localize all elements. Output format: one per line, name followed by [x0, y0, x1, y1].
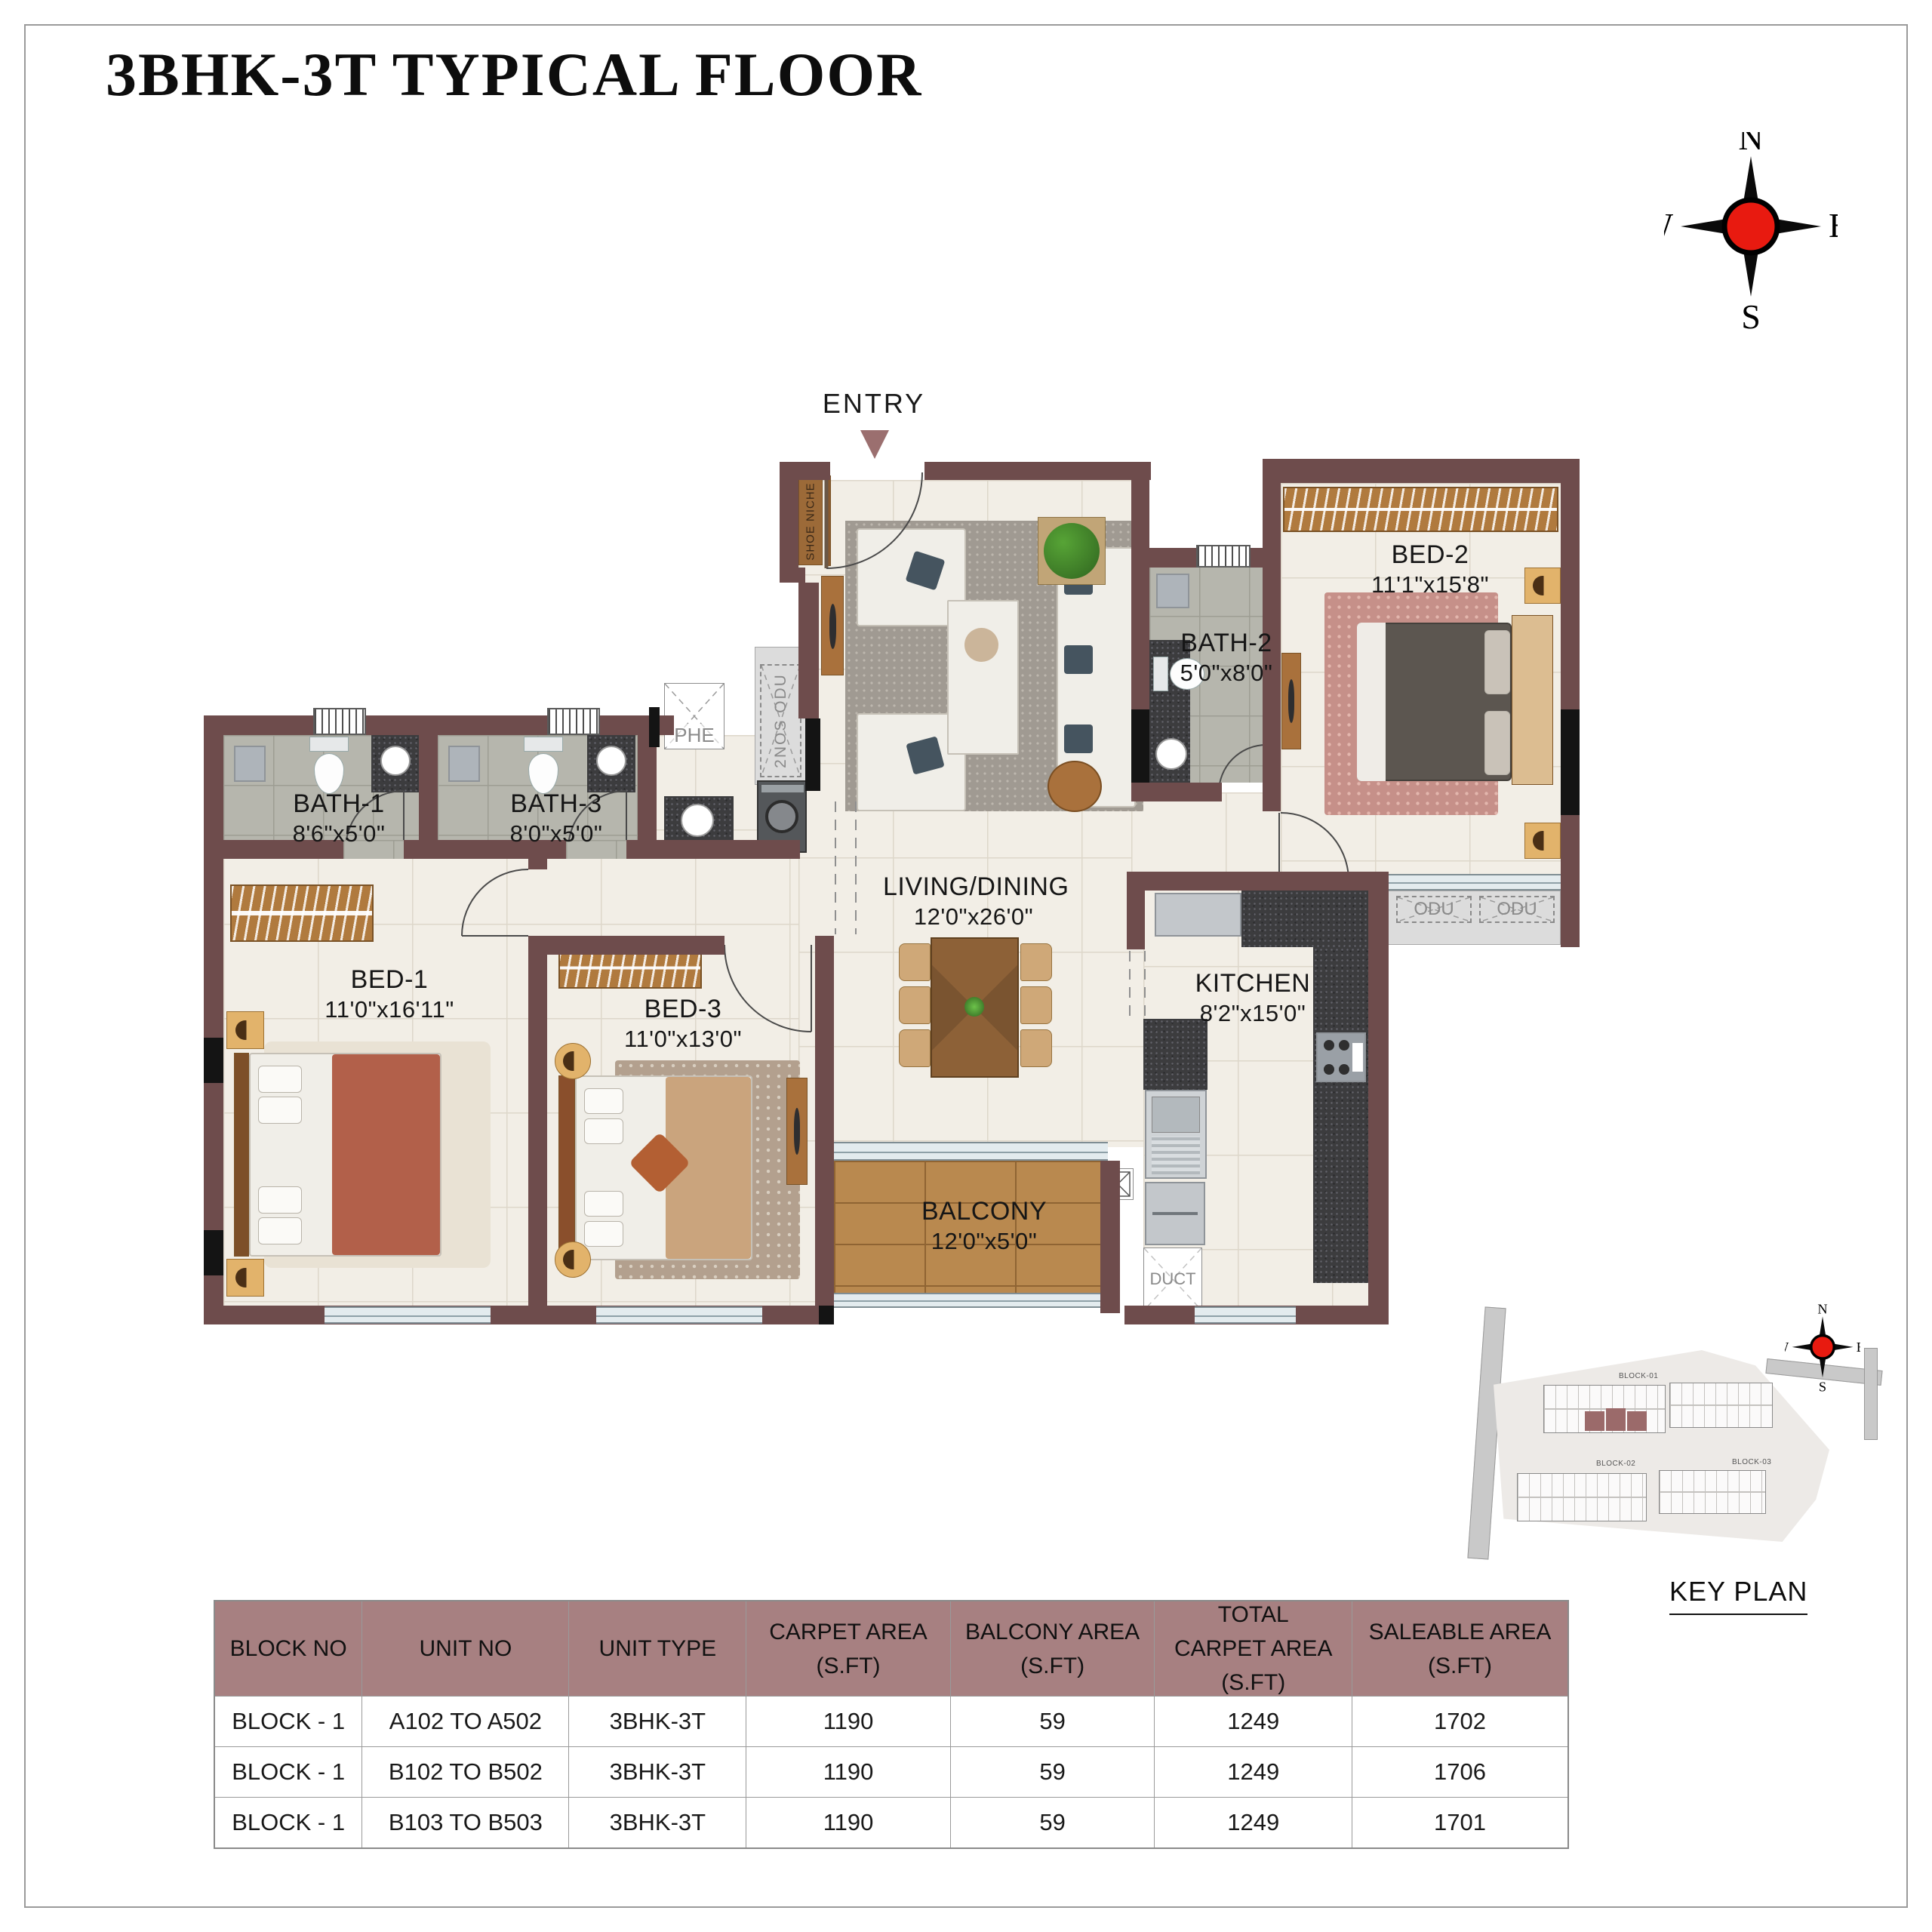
wall	[1368, 872, 1389, 1324]
cell: 3BHK-3T	[569, 1798, 746, 1847]
block-label: BLOCK-01	[1619, 1372, 1658, 1380]
wall	[1268, 783, 1281, 801]
cell: BLOCK - 1	[215, 1697, 362, 1747]
cell: 59	[951, 1747, 1155, 1798]
vent-window	[1196, 545, 1251, 568]
highlighted-unit	[1627, 1411, 1647, 1431]
highlighted-unit	[1585, 1411, 1604, 1431]
kitchen-window	[1195, 1306, 1296, 1324]
header-total-carpet-area: TOTALCARPET AREA(S.FT)	[1155, 1601, 1352, 1697]
cell: 1249	[1155, 1798, 1352, 1847]
window-strip	[1561, 709, 1580, 815]
wall	[1127, 872, 1389, 891]
window-strip	[819, 1306, 834, 1324]
compass-s: S	[1741, 297, 1761, 336]
wall	[528, 859, 547, 869]
wall	[204, 715, 674, 735]
floor-plan: ODU ODU 2NOS ODU PHE DUCT	[204, 415, 1585, 1332]
wall	[547, 936, 724, 955]
table-row: BLOCK - 1 B103 TO B503 3BHK-3T 1190 59 1…	[215, 1798, 1567, 1847]
cell: 1701	[1352, 1798, 1567, 1847]
window-strip	[1131, 709, 1149, 783]
cell: 1702	[1352, 1697, 1567, 1747]
block-label: BLOCK-02	[1596, 1460, 1635, 1468]
cell: 59	[951, 1697, 1155, 1747]
kitchen-label: KITCHEN8'2"x15'0"	[1170, 968, 1336, 1027]
road	[1864, 1348, 1878, 1440]
header-unit-type: UNIT TYPE	[569, 1601, 746, 1697]
bath2-label: BATH-25'0"x8'0"	[1158, 628, 1294, 687]
bed2-label: BED-211'1"x15'8"	[1340, 540, 1521, 598]
cell: 1249	[1155, 1747, 1352, 1798]
wall	[1100, 1161, 1120, 1313]
bed1-label: BED-111'0"x16'11"	[299, 964, 480, 1023]
balcony-label: BALCONY12'0"x5'0"	[894, 1196, 1075, 1255]
block-label: BLOCK-03	[1732, 1458, 1771, 1466]
floorplan-page: { "title": "3BHK-3T TYPICAL FLOOR", "com…	[0, 0, 1932, 1932]
cell: 59	[951, 1798, 1155, 1847]
compass-s: S	[1819, 1380, 1826, 1393]
compass-e: E	[1857, 1340, 1860, 1355]
wall	[924, 462, 1151, 480]
wall	[780, 462, 798, 583]
wall	[1131, 783, 1222, 801]
cell: B102 TO B502	[362, 1747, 569, 1798]
cell: 3BHK-3T	[569, 1747, 746, 1798]
wall	[1127, 891, 1145, 949]
cell: 1706	[1352, 1747, 1567, 1798]
cell: A102 TO A502	[362, 1697, 569, 1747]
cell: BLOCK - 1	[215, 1798, 362, 1847]
cell: B103 TO B503	[362, 1798, 569, 1847]
header-block-no: BLOCK NO	[215, 1601, 362, 1697]
table-row: BLOCK - 1 B102 TO B502 3BHK-3T 1190 59 1…	[215, 1747, 1567, 1798]
wall	[1561, 459, 1580, 947]
key-plan: BLOCK-01 BLOCK-02 BLOCK-03 N E W S KEY P…	[1472, 1298, 1894, 1630]
compass-e: E	[1829, 206, 1838, 245]
compass-w: W	[1785, 1340, 1789, 1355]
building-cluster	[1659, 1470, 1766, 1514]
area-table: BLOCK NO UNIT NO UNIT TYPE CARPET AREA(S…	[214, 1600, 1569, 1849]
cell: 1249	[1155, 1697, 1352, 1747]
cell: 1190	[746, 1697, 951, 1747]
compass-rose-icon: N E W S	[1664, 132, 1838, 336]
wall	[815, 936, 834, 1324]
highlighted-unit	[1606, 1408, 1626, 1431]
window-strip	[649, 707, 660, 747]
building-cluster	[1669, 1383, 1773, 1428]
header-carpet-area: CARPET AREA(S.FT)	[746, 1601, 951, 1697]
header-saleable-area: SALEABLE AREA(S.FT)	[1352, 1601, 1567, 1697]
table-row: BLOCK - 1 A102 TO A502 3BHK-3T 1190 59 1…	[215, 1697, 1567, 1747]
vent-window	[547, 708, 600, 735]
cell: 1190	[746, 1747, 951, 1798]
cell: 3BHK-3T	[569, 1697, 746, 1747]
vent-window	[313, 708, 366, 735]
wall	[1263, 459, 1580, 483]
compass-n: N	[1817, 1304, 1827, 1316]
header-unit-no: UNIT NO	[362, 1601, 569, 1697]
page-title: 3BHK-3T TYPICAL FLOOR	[106, 39, 922, 110]
cell: 1190	[746, 1798, 951, 1847]
window-strip	[204, 1230, 223, 1275]
wall	[798, 583, 819, 718]
bed3-label: BED-311'0"x13'0"	[592, 994, 774, 1053]
table-header-row: BLOCK NO UNIT NO UNIT TYPE CARPET AREA(S…	[215, 1601, 1567, 1697]
window-strip	[805, 718, 820, 791]
building-cluster	[1543, 1385, 1666, 1433]
compass-w: W	[1664, 206, 1674, 245]
header-balcony-area: BALCONY AREA(S.FT)	[951, 1601, 1155, 1697]
cell: BLOCK - 1	[215, 1747, 362, 1798]
living-label: LIVING/DINING12'0"x26'0"	[883, 872, 1064, 931]
building-cluster	[1517, 1473, 1647, 1521]
window-strip	[204, 1038, 223, 1083]
key-plan-compass-icon: N E W S	[1785, 1304, 1860, 1393]
wall	[528, 936, 547, 1324]
bed3-window	[596, 1306, 762, 1324]
bath3-label: BATH-38'0"x5'0"	[466, 789, 647, 848]
compass-n: N	[1738, 132, 1763, 157]
bed1-window	[325, 1306, 491, 1324]
key-plan-title: KEY PLAN	[1669, 1576, 1807, 1615]
bath1-label: BATH-18'6"x5'0"	[248, 789, 429, 848]
wall	[780, 568, 805, 583]
